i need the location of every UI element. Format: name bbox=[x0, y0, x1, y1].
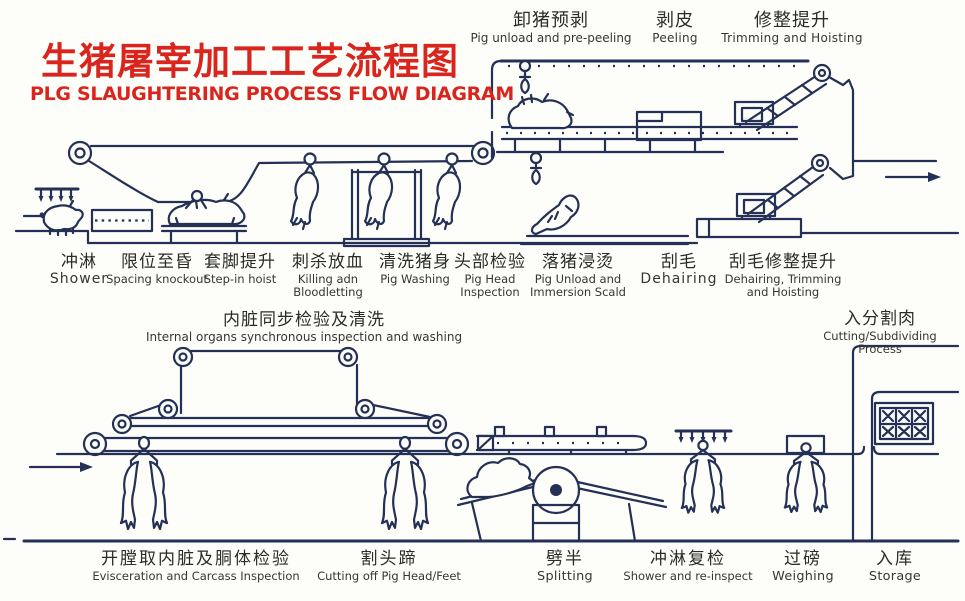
diagram-title: 生猪屠宰加工工艺流程图 PLG SLAUGHTERING PROCESS FLO… bbox=[30, 40, 470, 105]
label-dehairing: 刮毛 Dehairing bbox=[640, 252, 717, 286]
hoist-chute bbox=[829, 77, 936, 179]
label-organs-inspection: 内脏同步检验及清洗 Internal organs synchronous in… bbox=[146, 310, 462, 344]
label-storage: 入库 Storage bbox=[869, 549, 921, 583]
exit-arrow bbox=[886, 172, 941, 182]
pig-dropping-to-scald bbox=[532, 196, 579, 234]
splitting-saw-station bbox=[458, 458, 666, 541]
cold-storage bbox=[875, 403, 933, 444]
label-dehairing-trimming-hoisting: 刮毛修整提升 Dehairing, Trimming and Hoisting bbox=[725, 252, 842, 299]
title-zh: 生猪屠宰加工工艺流程图 bbox=[30, 40, 470, 84]
hanging-carcass bbox=[682, 441, 724, 513]
label-pig-washing: 清洗猪身 Pig Washing bbox=[379, 252, 451, 286]
label-head-inspection: 头部检验 Pig Head Inspection bbox=[454, 252, 526, 299]
ground-lines-top bbox=[16, 231, 958, 243]
label-trimming-hoisting: 修整提升 Trimming and Hoisting bbox=[721, 10, 863, 45]
label-evisceration: 开膛取内脏及胴体检验 Evisceration and Carcass Insp… bbox=[92, 549, 299, 583]
head-inspection-hook bbox=[531, 153, 541, 184]
hoist-elevator-lower bbox=[697, 155, 828, 237]
label-step-in-hoist: 套脚提升 Step-in hoist bbox=[204, 252, 277, 286]
unload-hook bbox=[520, 61, 530, 93]
title-en: PLG SLAUGHTERING PROCESS FLOW DIAGRAM bbox=[30, 84, 470, 105]
shower-sprinkler bbox=[36, 189, 78, 202]
organs-inspection-loop bbox=[113, 348, 446, 433]
label-cutting-subdividing: 入分割肉 Cutting/Subdividing Process bbox=[823, 309, 936, 356]
pig-on-conveyor bbox=[509, 94, 573, 128]
restrainer-pen bbox=[92, 210, 152, 231]
hoist-elevator-upper bbox=[735, 65, 830, 130]
label-immersion-scald: 落猪浸烫 Pig Unload and Immersion Scald bbox=[530, 252, 626, 299]
slaughter-process-flow-diagram: 生猪屠宰加工工艺流程图 PLG SLAUGHTERING PROCESS FLO… bbox=[0, 0, 965, 601]
hanging-pig bbox=[433, 154, 460, 230]
label-killing-bloodletting: 刺杀放血 Killing adn Bloodletting bbox=[292, 252, 364, 299]
label-pig-unload-prepeeling: 卸猪预剥 Pig unload and pre-peeling bbox=[470, 10, 631, 45]
label-splitting: 劈半 Splitting bbox=[537, 549, 593, 583]
label-shower-reinspect: 冲淋复检 Shower and re-inspect bbox=[623, 549, 752, 583]
label-peeling: 剥皮 Peeling bbox=[652, 10, 698, 45]
label-cut-head-feet: 割头蹄 Cutting off Pig Head/Feet bbox=[317, 549, 461, 583]
flow-arrow-bottom bbox=[30, 462, 93, 472]
head-feet-conveyor bbox=[477, 427, 646, 454]
hanging-pig bbox=[291, 154, 318, 230]
label-spacing-knockout: 限位至昏 Spacing knockout bbox=[106, 252, 208, 286]
hanging-pig bbox=[365, 154, 392, 230]
label-shower: 冲淋 Shower bbox=[50, 252, 108, 286]
label-weighing: 过磅 Weighing bbox=[772, 549, 834, 583]
carcass-on-table bbox=[467, 458, 535, 497]
